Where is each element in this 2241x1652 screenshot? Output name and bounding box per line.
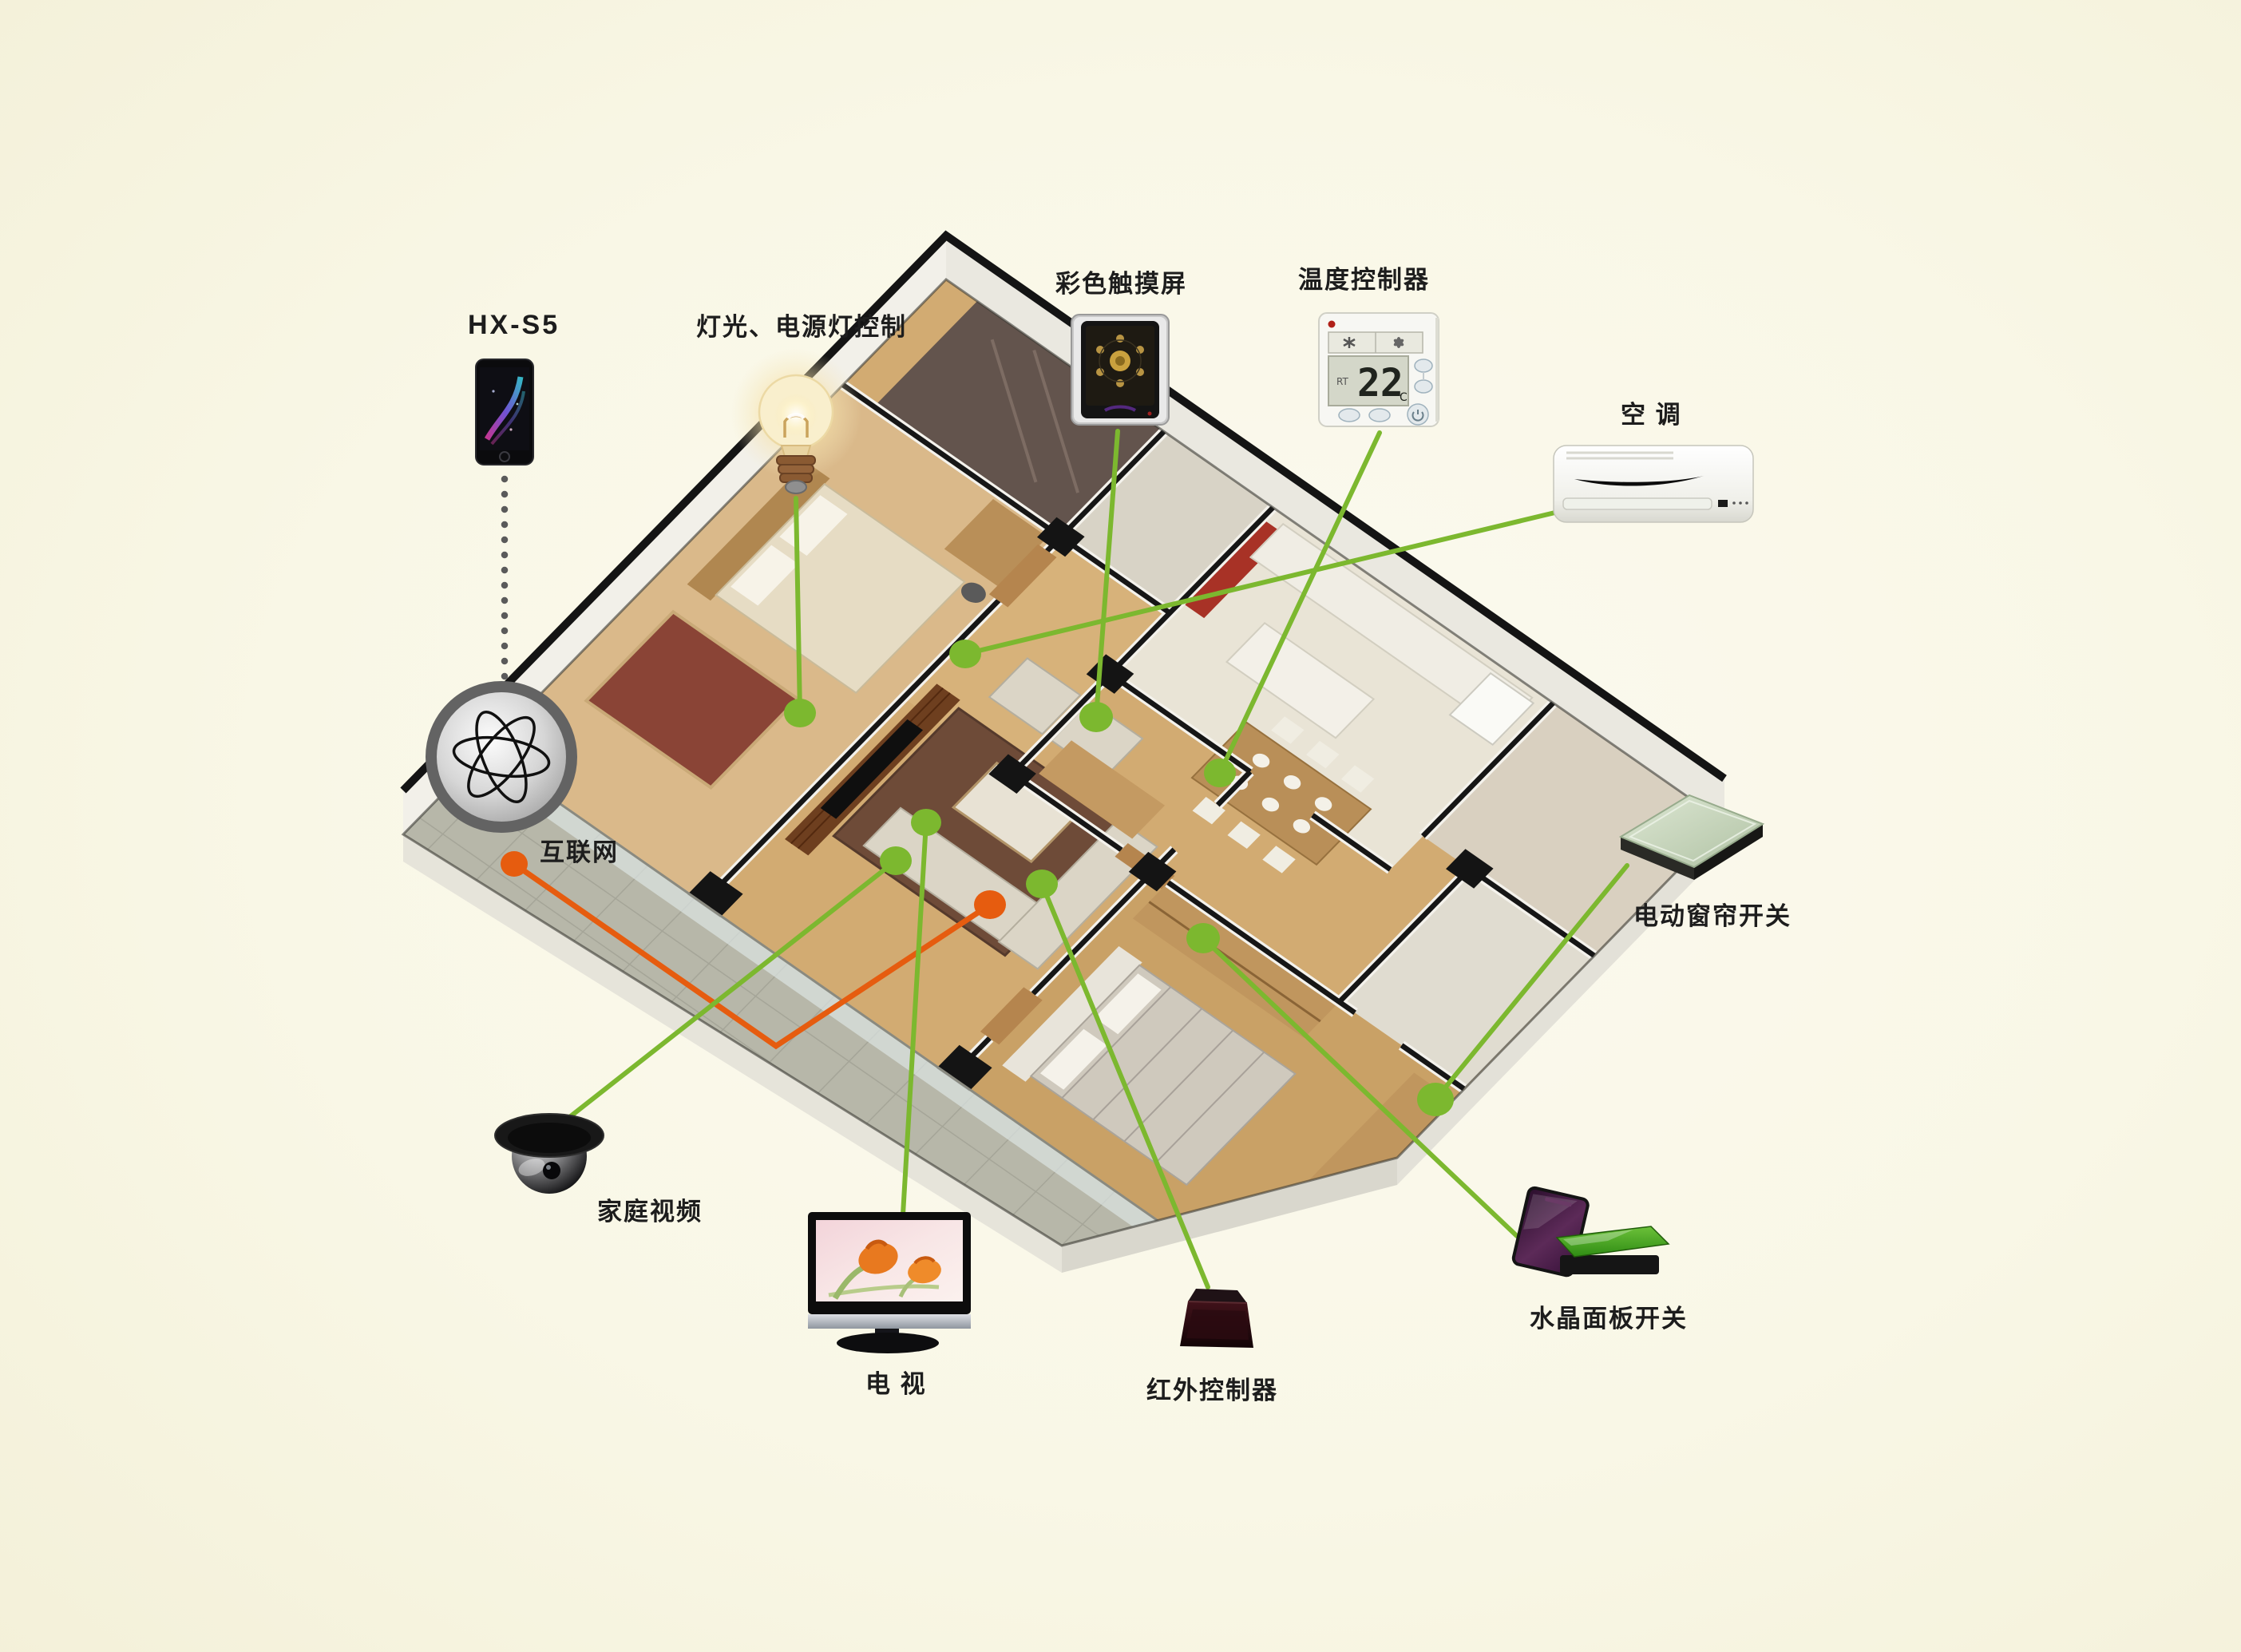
phone-icon bbox=[476, 359, 533, 465]
internet-label: 互联网 bbox=[540, 832, 619, 868]
internet-globe-icon bbox=[431, 687, 572, 827]
touchscreen-icon bbox=[1071, 315, 1169, 425]
thermostat-mode: RT bbox=[1336, 376, 1348, 387]
air-conditioner-icon bbox=[1554, 446, 1753, 522]
dot-bedroom2-window bbox=[1417, 1083, 1454, 1116]
ir-label: 红外控制器 bbox=[1146, 1370, 1278, 1406]
crystal-switch-icon bbox=[1512, 1187, 1669, 1277]
dot-orange-livingroom bbox=[974, 890, 1006, 919]
tv-icon bbox=[808, 1212, 971, 1353]
dot-entry bbox=[1079, 702, 1113, 732]
camera-icon bbox=[495, 1114, 604, 1194]
phone-label: HX-S5 bbox=[468, 310, 560, 341]
dot-hallway bbox=[949, 640, 981, 668]
dot-bedroom2 bbox=[1186, 923, 1220, 953]
thermostat-down-button bbox=[1415, 380, 1432, 393]
camera-label: 家庭视频 bbox=[597, 1191, 703, 1227]
dot-livingroom bbox=[1026, 870, 1058, 898]
light-label: 灯光、电源灯控制 bbox=[696, 307, 907, 343]
crystal-label: 水晶面板开关 bbox=[1530, 1298, 1688, 1334]
dot-camera-wall bbox=[880, 846, 912, 875]
dot-media-wall bbox=[911, 809, 941, 836]
thermostat-unit: °C bbox=[1394, 391, 1408, 404]
thermostat-label: 温度控制器 bbox=[1298, 259, 1430, 295]
smart-home-diagram: RT 22 °C bbox=[0, 0, 2241, 1652]
tv-label: 电 视 bbox=[865, 1364, 927, 1400]
diagram-canvas: RT 22 °C bbox=[0, 0, 2241, 1652]
curtain-label: 电动窗帘开关 bbox=[1633, 896, 1792, 932]
thermostat-button bbox=[1369, 409, 1390, 422]
touchscreen-label: 彩色触摸屏 bbox=[1055, 263, 1187, 299]
thermostat-icon: RT 22 °C bbox=[1319, 313, 1439, 426]
ir-controller-icon bbox=[1180, 1289, 1253, 1348]
ac-label: 空 调 bbox=[1621, 394, 1682, 430]
thermostat-button bbox=[1339, 409, 1360, 422]
dot-orange-internet bbox=[501, 851, 528, 877]
dot-bedroom1 bbox=[784, 699, 816, 727]
thermostat-up-button bbox=[1415, 359, 1432, 372]
dot-dining bbox=[1204, 759, 1236, 787]
